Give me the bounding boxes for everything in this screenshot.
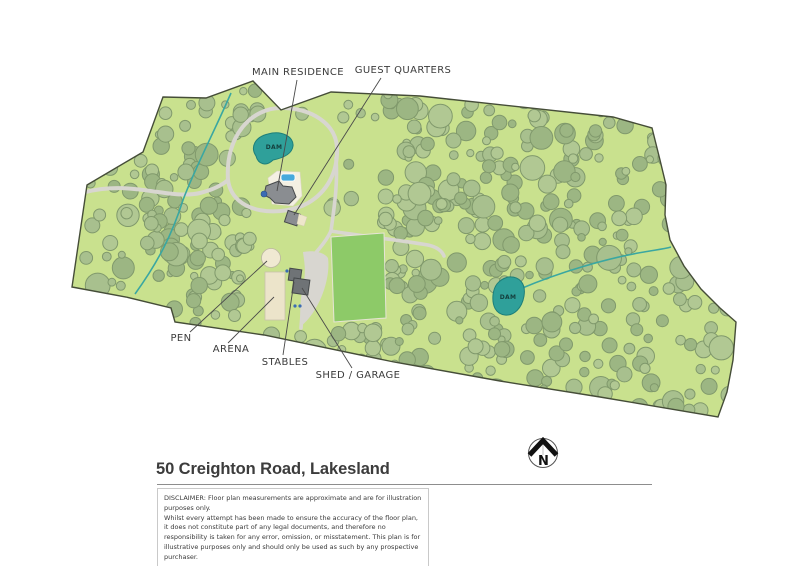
tree [694, 104, 705, 115]
tree [249, 346, 258, 355]
compass-north-letter: N [538, 454, 549, 469]
tree [408, 182, 431, 205]
tree [141, 236, 155, 250]
tree [701, 378, 717, 394]
tree [530, 126, 553, 149]
tree [279, 343, 294, 358]
tree [685, 389, 695, 399]
blue-dot [293, 304, 296, 307]
tree [442, 82, 459, 99]
tree [96, 144, 114, 162]
disclaimer-paragraph-1: DISCLAIMER: Floor plan measurements are … [164, 494, 422, 514]
tree [711, 366, 719, 374]
tree [515, 256, 526, 267]
tree [320, 351, 337, 368]
tree [691, 135, 705, 149]
tree [403, 146, 415, 158]
tree [673, 109, 681, 117]
tree [344, 191, 358, 205]
tree [718, 217, 727, 226]
tree [618, 276, 626, 284]
tree [102, 252, 111, 261]
tree [393, 195, 402, 204]
tree [87, 112, 105, 130]
tree [622, 167, 630, 175]
tree [676, 335, 686, 345]
tree [616, 229, 628, 241]
tree [200, 197, 217, 214]
tree [534, 334, 547, 347]
label-main-residence: MAIN RESIDENCE [252, 67, 344, 78]
tree [103, 236, 118, 251]
tree [627, 263, 641, 277]
tree [565, 298, 580, 313]
tree [683, 404, 695, 416]
disclaimer-box: DISCLAIMER: Floor plan measurements are … [157, 488, 429, 566]
water-tank [261, 191, 267, 197]
tree [633, 157, 648, 172]
tree [124, 101, 136, 113]
tree [124, 142, 138, 156]
tree [121, 208, 132, 219]
tree [379, 212, 392, 225]
tree [579, 275, 597, 293]
tree [138, 96, 145, 103]
tree [378, 170, 393, 185]
tree [570, 322, 581, 333]
tree [158, 126, 174, 142]
tree [533, 290, 545, 302]
label-pen: PEN [170, 333, 191, 344]
tree [649, 287, 658, 296]
tree [457, 86, 466, 95]
tree [436, 199, 447, 210]
tree [679, 81, 692, 94]
tree [233, 107, 248, 122]
tree [365, 340, 380, 355]
tree [617, 367, 632, 382]
tree [408, 276, 425, 293]
pen-circle [262, 249, 281, 268]
tree [429, 332, 441, 344]
tree [126, 132, 140, 146]
arena-rect [265, 272, 285, 320]
tree [602, 338, 617, 353]
tree [463, 382, 471, 390]
tree [521, 351, 535, 365]
tree [484, 379, 508, 403]
tree [596, 401, 607, 412]
tree [568, 412, 585, 429]
tree [586, 412, 594, 420]
tree [470, 294, 487, 311]
tree [159, 107, 172, 120]
tree [719, 238, 729, 248]
tree [709, 252, 726, 269]
tree [429, 104, 453, 128]
tree [116, 281, 125, 290]
tree [644, 334, 653, 343]
tree [663, 283, 675, 295]
tree [606, 98, 615, 107]
tree [716, 85, 724, 93]
tree [344, 159, 354, 169]
tree [553, 217, 568, 232]
tree [542, 312, 562, 332]
tree [237, 275, 244, 282]
tree [449, 374, 463, 388]
tree [525, 412, 537, 424]
tree [460, 401, 468, 409]
tree [569, 394, 584, 409]
blue-dot [285, 269, 288, 272]
tree [451, 84, 461, 94]
tree [598, 222, 607, 231]
tree [484, 105, 495, 116]
tree [556, 245, 570, 259]
tree [727, 212, 742, 227]
tree [571, 172, 580, 181]
tree [593, 99, 608, 114]
tree [378, 189, 393, 204]
tree [560, 124, 573, 137]
tree [696, 364, 705, 373]
tree [463, 180, 480, 197]
tree [153, 323, 170, 340]
tree [688, 136, 705, 153]
tree [387, 406, 402, 421]
tree [717, 252, 728, 263]
tree [688, 111, 696, 119]
site-plan-page: DAM DAM [0, 0, 800, 566]
tree [489, 328, 501, 340]
tree [371, 113, 379, 121]
dam-lower-label: DAM [500, 294, 517, 301]
tree [190, 251, 205, 266]
tree [580, 367, 589, 376]
tree [735, 255, 745, 265]
tree [282, 342, 290, 350]
tree [564, 199, 573, 208]
tree [490, 317, 500, 327]
tree [569, 81, 585, 97]
tree [397, 98, 419, 120]
tree [528, 109, 540, 121]
tree [486, 366, 495, 375]
tree [548, 403, 558, 413]
tree [538, 175, 556, 193]
tree [480, 172, 491, 183]
tree [526, 271, 534, 279]
tree [633, 298, 647, 312]
tree [472, 195, 495, 218]
tree [392, 392, 402, 402]
tree [243, 335, 251, 343]
tree [612, 211, 627, 226]
tree [601, 299, 615, 313]
tree [243, 232, 256, 245]
tree [418, 410, 432, 424]
tree [626, 208, 643, 225]
tree [558, 84, 569, 95]
tree [668, 398, 684, 414]
tree [475, 415, 488, 428]
tree [488, 216, 503, 231]
tree [483, 160, 496, 173]
tree [166, 301, 182, 317]
tree [709, 173, 720, 184]
tree [724, 180, 739, 195]
tree [682, 173, 691, 182]
tree [536, 258, 553, 275]
tree [115, 124, 130, 139]
tree [524, 91, 541, 108]
tree [94, 209, 106, 221]
label-shed-garage: SHED / GARAGE [316, 370, 401, 381]
tree [542, 87, 552, 97]
tree [434, 217, 442, 225]
tree [599, 238, 606, 245]
tree [90, 153, 103, 166]
tree [662, 216, 678, 232]
tree [128, 114, 139, 125]
tree [508, 120, 516, 128]
tree [133, 111, 144, 122]
tree [146, 98, 154, 106]
tree [421, 137, 434, 150]
tree [526, 317, 543, 334]
tree [656, 127, 666, 137]
tree [73, 102, 91, 120]
tree [221, 293, 239, 311]
tree [640, 363, 650, 373]
tree [678, 104, 686, 112]
tree [467, 150, 474, 157]
tree [650, 384, 658, 392]
tree [631, 399, 648, 416]
tree [614, 408, 633, 427]
tree [407, 120, 421, 134]
tree [705, 269, 730, 294]
tree [483, 137, 491, 145]
tree [609, 196, 625, 212]
label-arena: ARENA [213, 344, 249, 355]
tree [580, 148, 593, 161]
tree [729, 135, 747, 153]
tree [494, 342, 509, 357]
tree [510, 202, 521, 213]
tree [640, 266, 657, 283]
paddock [331, 233, 386, 322]
tree [397, 81, 407, 91]
blue-dot [298, 304, 301, 307]
pool [281, 174, 295, 181]
tree [595, 154, 603, 162]
tree [180, 120, 191, 131]
tree [454, 394, 465, 405]
tree [709, 336, 733, 360]
tree [479, 389, 496, 406]
tree [502, 184, 519, 201]
tree [456, 317, 463, 324]
property-map: DAM DAM [0, 0, 800, 566]
tree [192, 233, 208, 249]
tree [144, 217, 158, 231]
tree [693, 414, 710, 431]
tree [505, 388, 516, 399]
tree [593, 89, 610, 106]
tree [481, 281, 489, 289]
tree [474, 233, 491, 250]
tree [578, 234, 586, 242]
tree [394, 227, 407, 240]
tree [421, 259, 442, 280]
tree [458, 218, 474, 234]
tree [715, 94, 738, 117]
tree [529, 215, 545, 231]
tree [685, 339, 697, 351]
tree [674, 293, 687, 306]
tree [240, 88, 247, 95]
dam-upper-label: DAM [266, 144, 283, 151]
tree [211, 358, 224, 371]
tree [701, 116, 708, 123]
tree [430, 376, 453, 399]
tree [248, 84, 261, 97]
tree [85, 273, 110, 298]
tree [112, 257, 134, 279]
tree [212, 248, 225, 261]
tree [465, 276, 480, 291]
tree [685, 94, 701, 110]
tree [152, 354, 165, 367]
tree [686, 191, 703, 208]
tree [543, 194, 559, 210]
tree [80, 252, 93, 265]
tree [175, 223, 189, 237]
tree [449, 151, 458, 160]
tree [379, 391, 394, 406]
tree [187, 294, 201, 308]
tree [385, 260, 398, 273]
tree [285, 344, 294, 353]
tree [118, 251, 125, 258]
tree [170, 174, 178, 182]
tree [608, 91, 624, 107]
tree [503, 237, 520, 254]
tree [85, 144, 101, 160]
tree [89, 107, 106, 124]
tree [466, 234, 475, 243]
tree [187, 100, 196, 109]
label-stables: STABLES [262, 357, 308, 368]
tree [153, 270, 164, 281]
tree [108, 278, 116, 286]
tree [130, 170, 139, 179]
tree [568, 154, 577, 163]
tree [402, 323, 414, 335]
tree [364, 324, 382, 342]
tree [121, 110, 136, 125]
tree [580, 351, 590, 361]
tree [229, 310, 241, 322]
label-guest-quarters: GUEST QUARTERS [355, 65, 452, 76]
tree [671, 153, 678, 160]
tree [512, 163, 519, 170]
disclaimer-paragraph-2: Whilst every attempt has been made to en… [164, 514, 422, 563]
tree [161, 243, 179, 261]
tree [191, 277, 207, 293]
tree [418, 210, 434, 226]
tree [491, 147, 503, 159]
title-divider [157, 484, 652, 485]
tree [693, 167, 708, 182]
tree [716, 264, 725, 273]
tree [447, 253, 466, 272]
tree [714, 160, 727, 173]
tree [465, 98, 479, 112]
tree [520, 156, 545, 181]
tree [527, 370, 544, 387]
tree [723, 153, 731, 161]
tree [242, 208, 251, 217]
tree [729, 181, 740, 192]
tree [688, 296, 702, 310]
tree [560, 338, 573, 351]
tree [665, 141, 681, 157]
shed-garage-building [292, 278, 310, 295]
tree [406, 250, 423, 267]
tree [492, 115, 507, 130]
tree [215, 265, 231, 281]
tree [100, 153, 111, 164]
tree [610, 381, 619, 390]
tree [578, 406, 591, 419]
tree [589, 125, 601, 137]
page-title: 50 Creighton Road, Lakesland [156, 460, 390, 479]
tree [504, 394, 514, 404]
tree [594, 98, 604, 108]
tree [523, 403, 540, 420]
tree [631, 324, 643, 336]
tree [733, 137, 744, 148]
tree [627, 282, 636, 291]
tree [685, 126, 701, 142]
tree [604, 117, 616, 129]
tree [589, 314, 599, 324]
tree [295, 331, 307, 343]
tree [518, 92, 528, 102]
tree [182, 142, 195, 155]
tree [344, 100, 353, 109]
tree [634, 409, 651, 426]
tree [468, 339, 483, 354]
tree [338, 112, 349, 123]
tree [656, 315, 668, 327]
tree [594, 359, 603, 368]
tree [707, 151, 715, 159]
tree [447, 173, 460, 186]
tree [380, 395, 396, 411]
tree [535, 395, 543, 403]
tree [624, 343, 635, 354]
tree [413, 307, 426, 320]
tree [498, 255, 511, 268]
tree [710, 101, 724, 115]
north-compass-icon: N [524, 434, 562, 472]
tree [446, 133, 461, 148]
tree [395, 338, 403, 346]
